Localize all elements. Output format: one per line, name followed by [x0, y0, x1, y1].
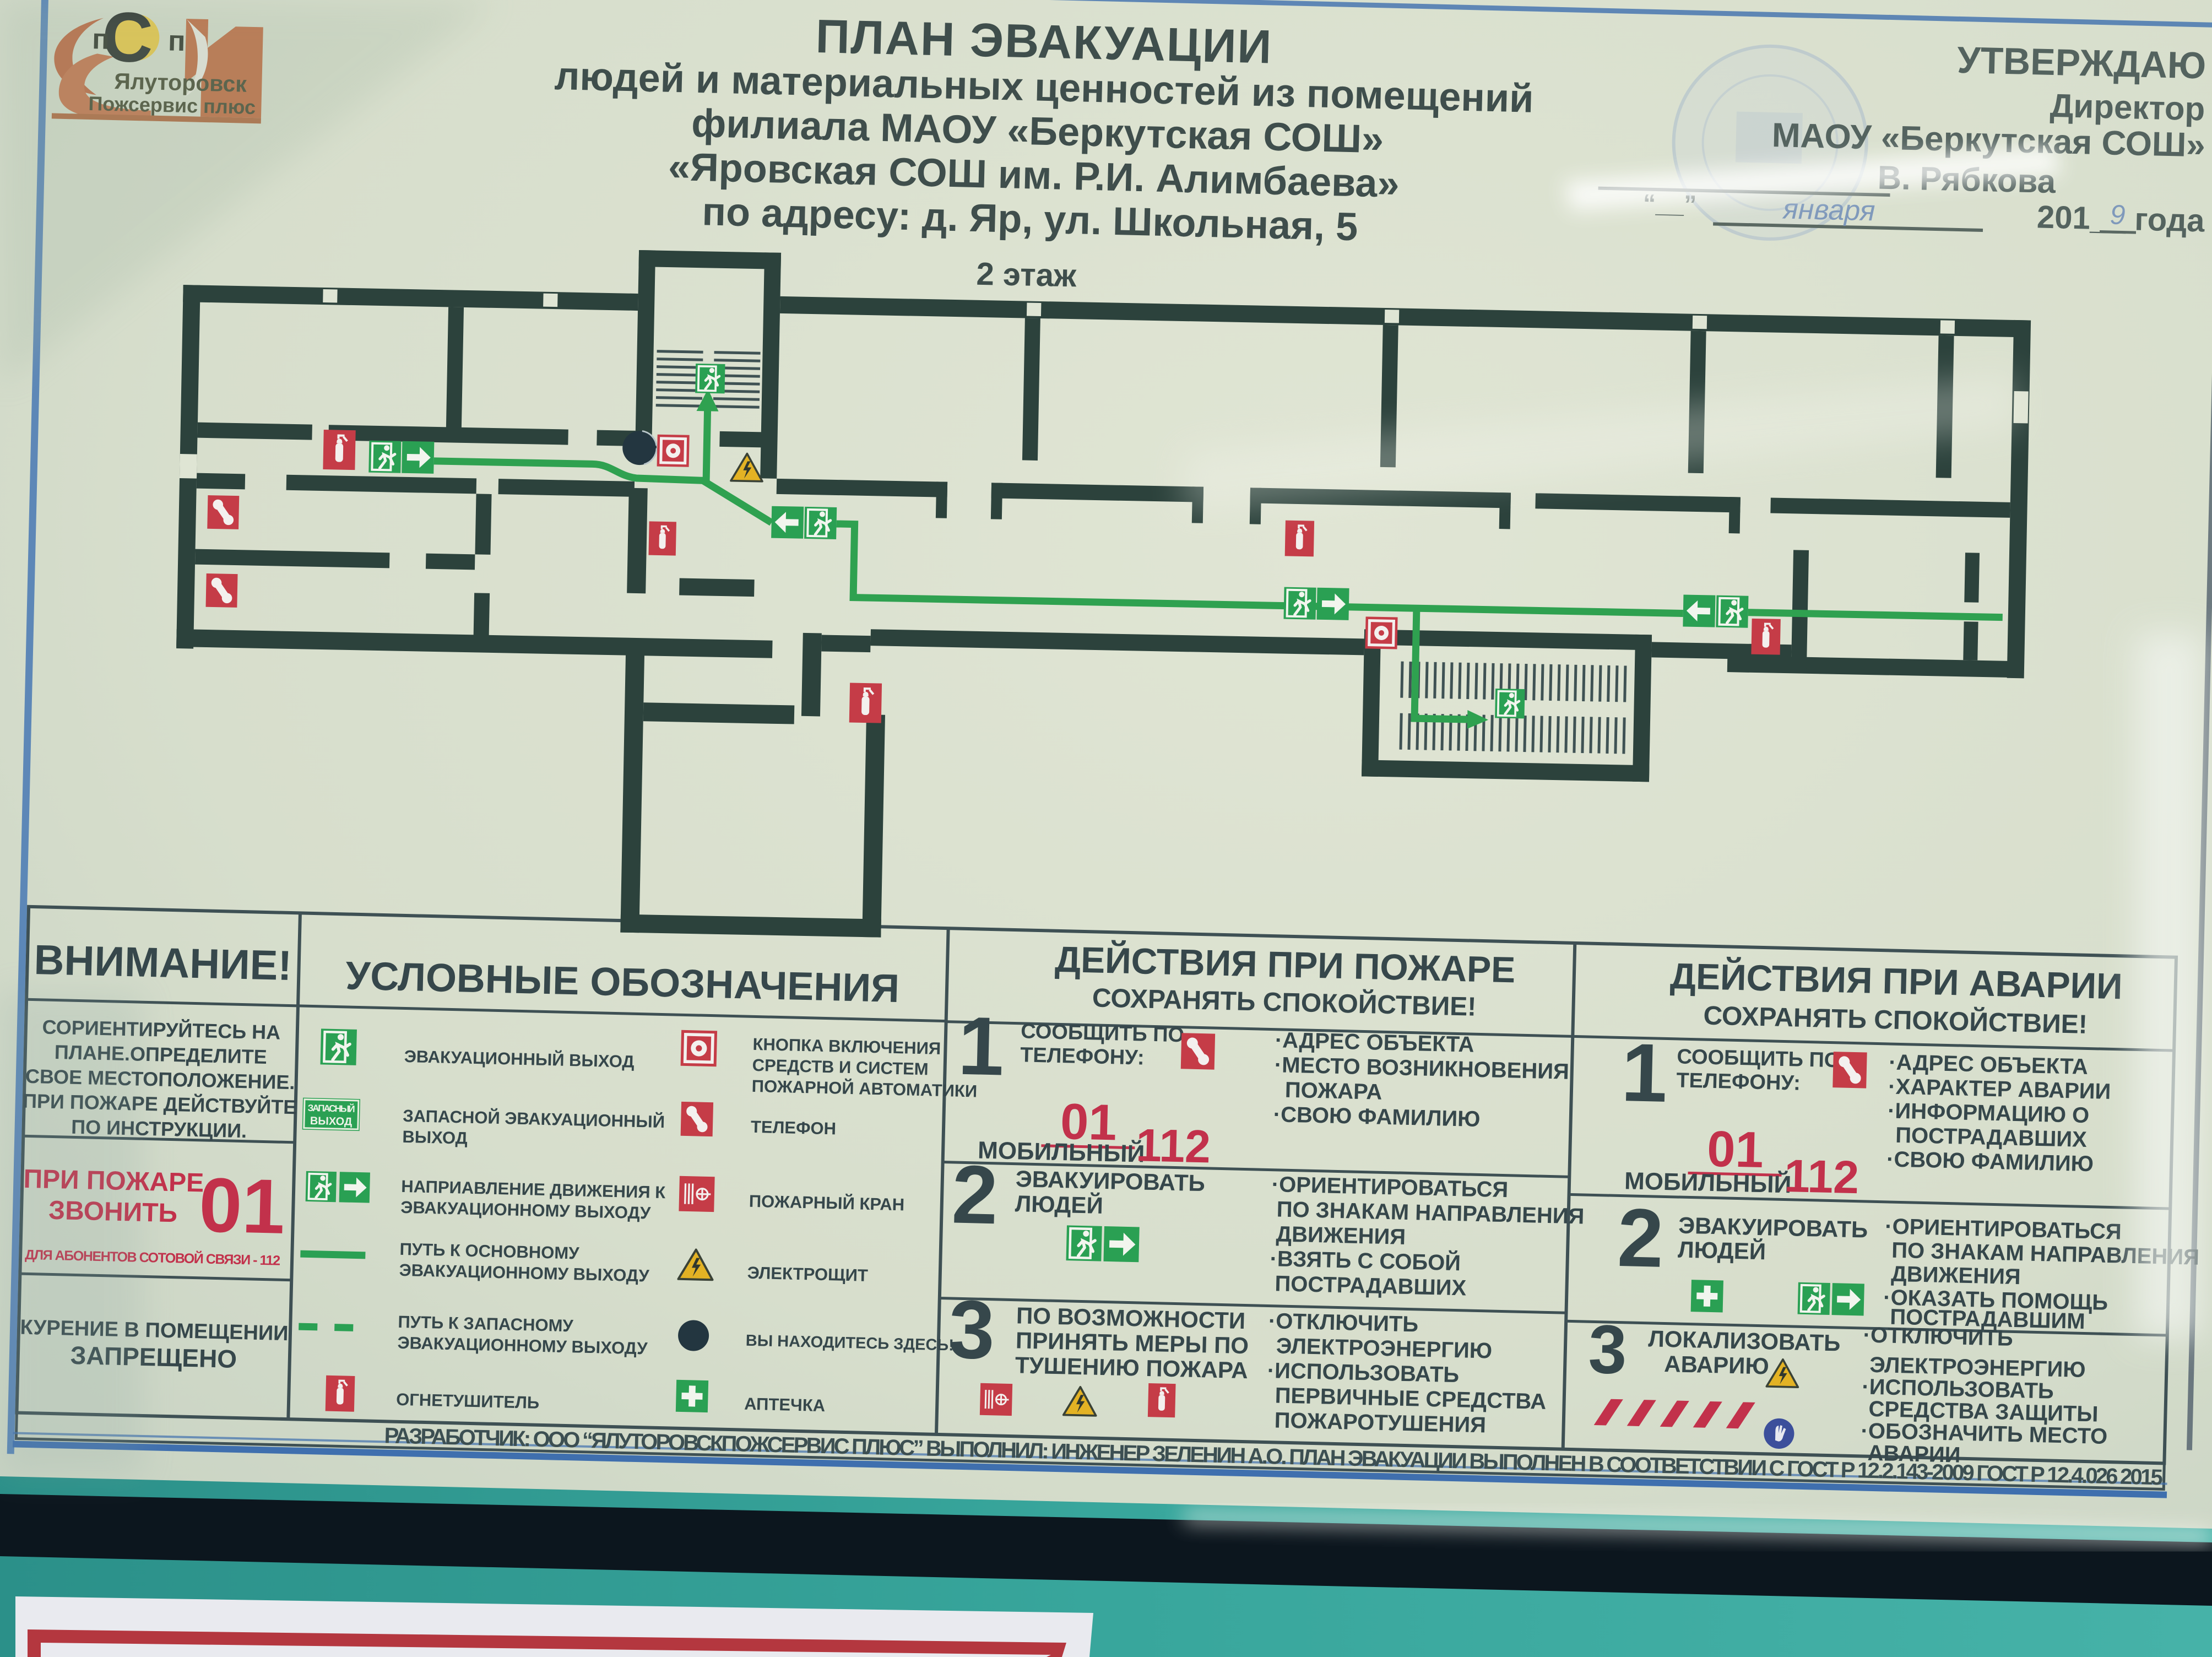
svg-text:января: января — [1781, 193, 1875, 227]
svg-text:ПОЖАРОТУШЕНИЯ: ПОЖАРОТУШЕНИЯ — [1274, 1408, 1486, 1437]
svg-text:ВНИМАНИЕ!: ВНИМАНИЕ! — [34, 936, 292, 989]
svg-text:·АДРЕС ОБЪЕКТА: ·АДРЕС ОБЪЕКТА — [1275, 1028, 1474, 1057]
svg-text:ЭЛЕКТРОЭНЕРГИЮ: ЭЛЕКТРОЭНЕРГИЮ — [1276, 1334, 1492, 1363]
svg-text:ЛЮДЕЙ: ЛЮДЕЙ — [1678, 1236, 1766, 1265]
svg-text:01: 01 — [198, 1161, 286, 1250]
svg-text:ДВИЖЕНИЯ: ДВИЖЕНИЯ — [1276, 1222, 1406, 1249]
svg-text:112: 112 — [1135, 1119, 1211, 1172]
svg-text:3: 3 — [948, 1282, 996, 1376]
svg-text:ТЕЛЕФОНУ:: ТЕЛЕФОНУ: — [1020, 1043, 1145, 1069]
svg-text:ТЕЛЕФОНУ:: ТЕЛЕФОНУ: — [1676, 1069, 1801, 1095]
svg-text:АВАРИЮ: АВАРИЮ — [1664, 1351, 1769, 1379]
svg-text:МОБИЛЬНЫЙ: МОБИЛЬНЫЙ — [978, 1136, 1145, 1168]
svg-text:·СВОЮ ФАМИЛИЮ: ·СВОЮ ФАМИЛИЮ — [1886, 1147, 2094, 1176]
svg-text:ОГНЕТУШИТЕЛЬ: ОГНЕТУШИТЕЛЬ — [396, 1390, 540, 1412]
svg-text:СООБЩИТЬ ПО: СООБЩИТЬ ПО — [1021, 1020, 1185, 1047]
svg-text:3: 3 — [1587, 1311, 1628, 1389]
svg-text:2 этаж: 2 этаж — [976, 256, 1077, 294]
svg-text:·ИСПОЛЬЗОВАТЬ: ·ИСПОЛЬЗОВАТЬ — [1267, 1358, 1459, 1387]
svg-text:112: 112 — [1783, 1150, 1859, 1203]
svg-text:УТВЕРЖДАЮ: УТВЕРЖДАЮ — [1956, 39, 2206, 87]
svg-text:1: 1 — [957, 999, 1005, 1093]
svg-text:ЭЛЕКТРОЩИТ: ЭЛЕКТРОЩИТ — [747, 1263, 868, 1285]
svg-text:Директор: Директор — [2050, 87, 2205, 128]
svg-text:ТЕЛЕФОН: ТЕЛЕФОН — [751, 1117, 837, 1139]
svg-text:ЛЮДЕЙ: ЛЮДЕЙ — [1015, 1190, 1103, 1219]
svg-text:1: 1 — [1620, 1026, 1668, 1119]
svg-text:ТУШЕНИЮ ПОЖАРА: ТУШЕНИЮ ПОЖАРА — [1015, 1352, 1248, 1383]
svg-text:·ОТКЛЮЧИТЬ: ·ОТКЛЮЧИТЬ — [1268, 1309, 1418, 1336]
svg-text:СООБЩИТЬ ПО: СООБЩИТЬ ПО — [1677, 1045, 1841, 1072]
svg-text:·ОТКЛЮЧИТЬ: ·ОТКЛЮЧИТЬ — [1863, 1323, 2013, 1351]
svg-text:ПОЖАРА: ПОЖАРА — [1284, 1078, 1382, 1104]
svg-text:9: 9 — [2110, 199, 2126, 230]
svg-text:ВЫХОД: ВЫХОД — [402, 1127, 468, 1148]
svg-text:·СВОЮ ФАМИЛИЮ: ·СВОЮ ФАМИЛИЮ — [1273, 1102, 1481, 1131]
svg-text:2: 2 — [1617, 1191, 1665, 1285]
svg-text:2: 2 — [951, 1147, 999, 1241]
svg-text:АПТЕЧКА: АПТЕЧКА — [744, 1394, 826, 1415]
svg-text:·ВЗЯТЬ С СОБОЙ: ·ВЗЯТЬ С СОБОЙ — [1270, 1246, 1461, 1275]
svg-text:ПОЖАРНЫЙ КРАН: ПОЖАРНЫЙ КРАН — [749, 1191, 904, 1215]
svg-text:ДВИЖЕНИЯ: ДВИЖЕНИЯ — [1891, 1262, 2021, 1290]
svg-text:ПОСТРАДАВШИХ: ПОСТРАДАВШИХ — [1275, 1271, 1467, 1300]
